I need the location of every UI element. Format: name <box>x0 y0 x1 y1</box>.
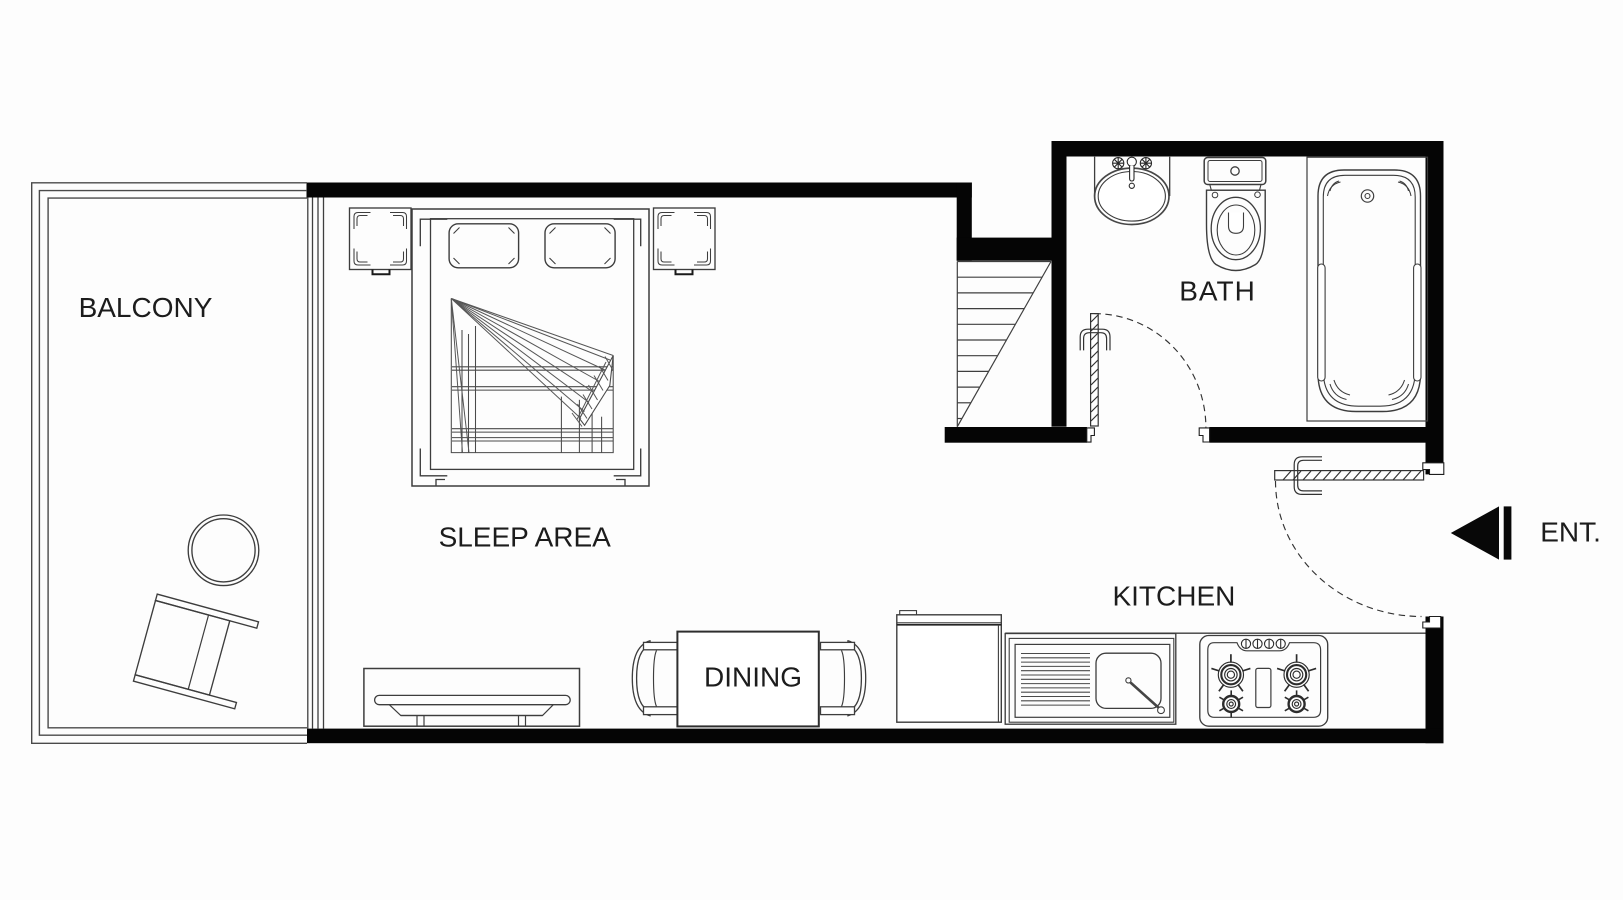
svg-text:SLEEP AREA: SLEEP AREA <box>439 522 612 553</box>
svg-text:ENT.: ENT. <box>1540 517 1601 548</box>
svg-text:KITCHEN: KITCHEN <box>1112 581 1235 612</box>
svg-text:BALCONY: BALCONY <box>79 292 213 323</box>
svg-text:BATH: BATH <box>1179 276 1256 307</box>
svg-text:DINING: DINING <box>704 662 802 693</box>
